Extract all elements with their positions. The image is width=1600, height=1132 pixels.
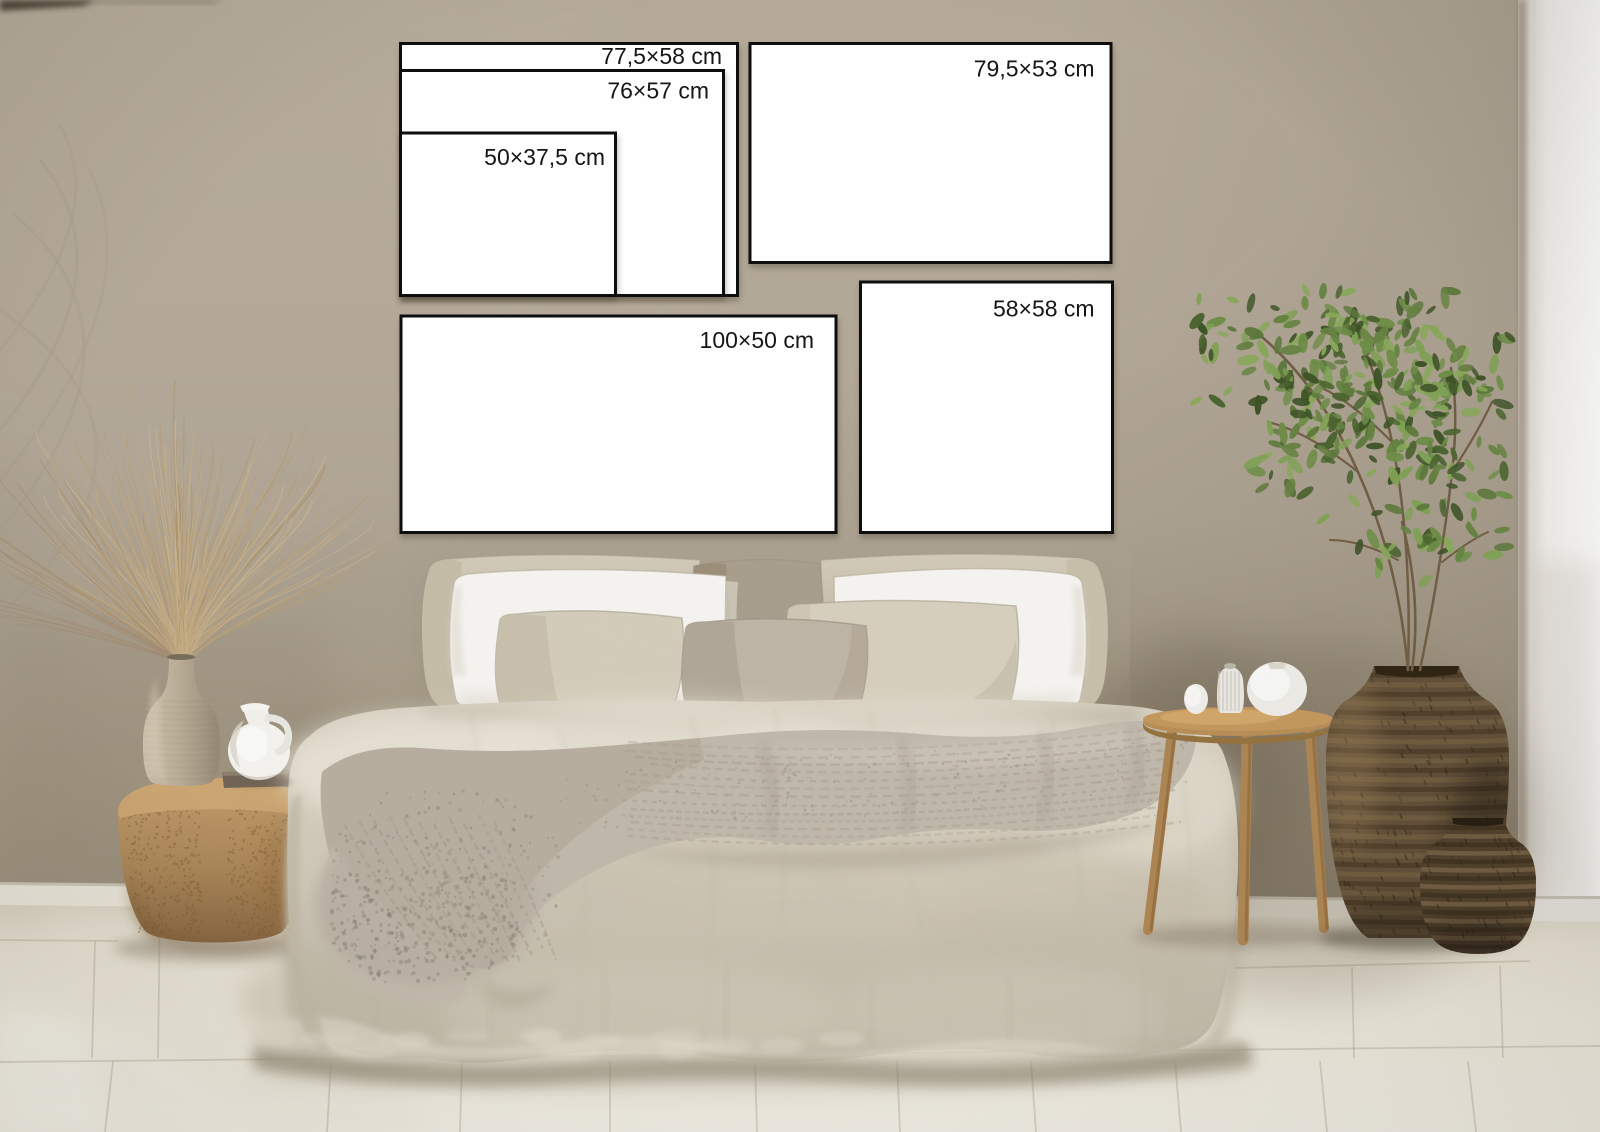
svg-text:77,5×58 cm: 77,5×58 cm: [601, 43, 722, 69]
svg-text:50×37,5 cm: 50×37,5 cm: [484, 144, 605, 170]
svg-text:76×57 cm: 76×57 cm: [607, 78, 709, 104]
svg-text:58×58 cm: 58×58 cm: [993, 296, 1095, 322]
svg-text:79,5×53 cm: 79,5×53 cm: [974, 56, 1095, 82]
svg-text:100×50 cm: 100×50 cm: [700, 327, 814, 353]
